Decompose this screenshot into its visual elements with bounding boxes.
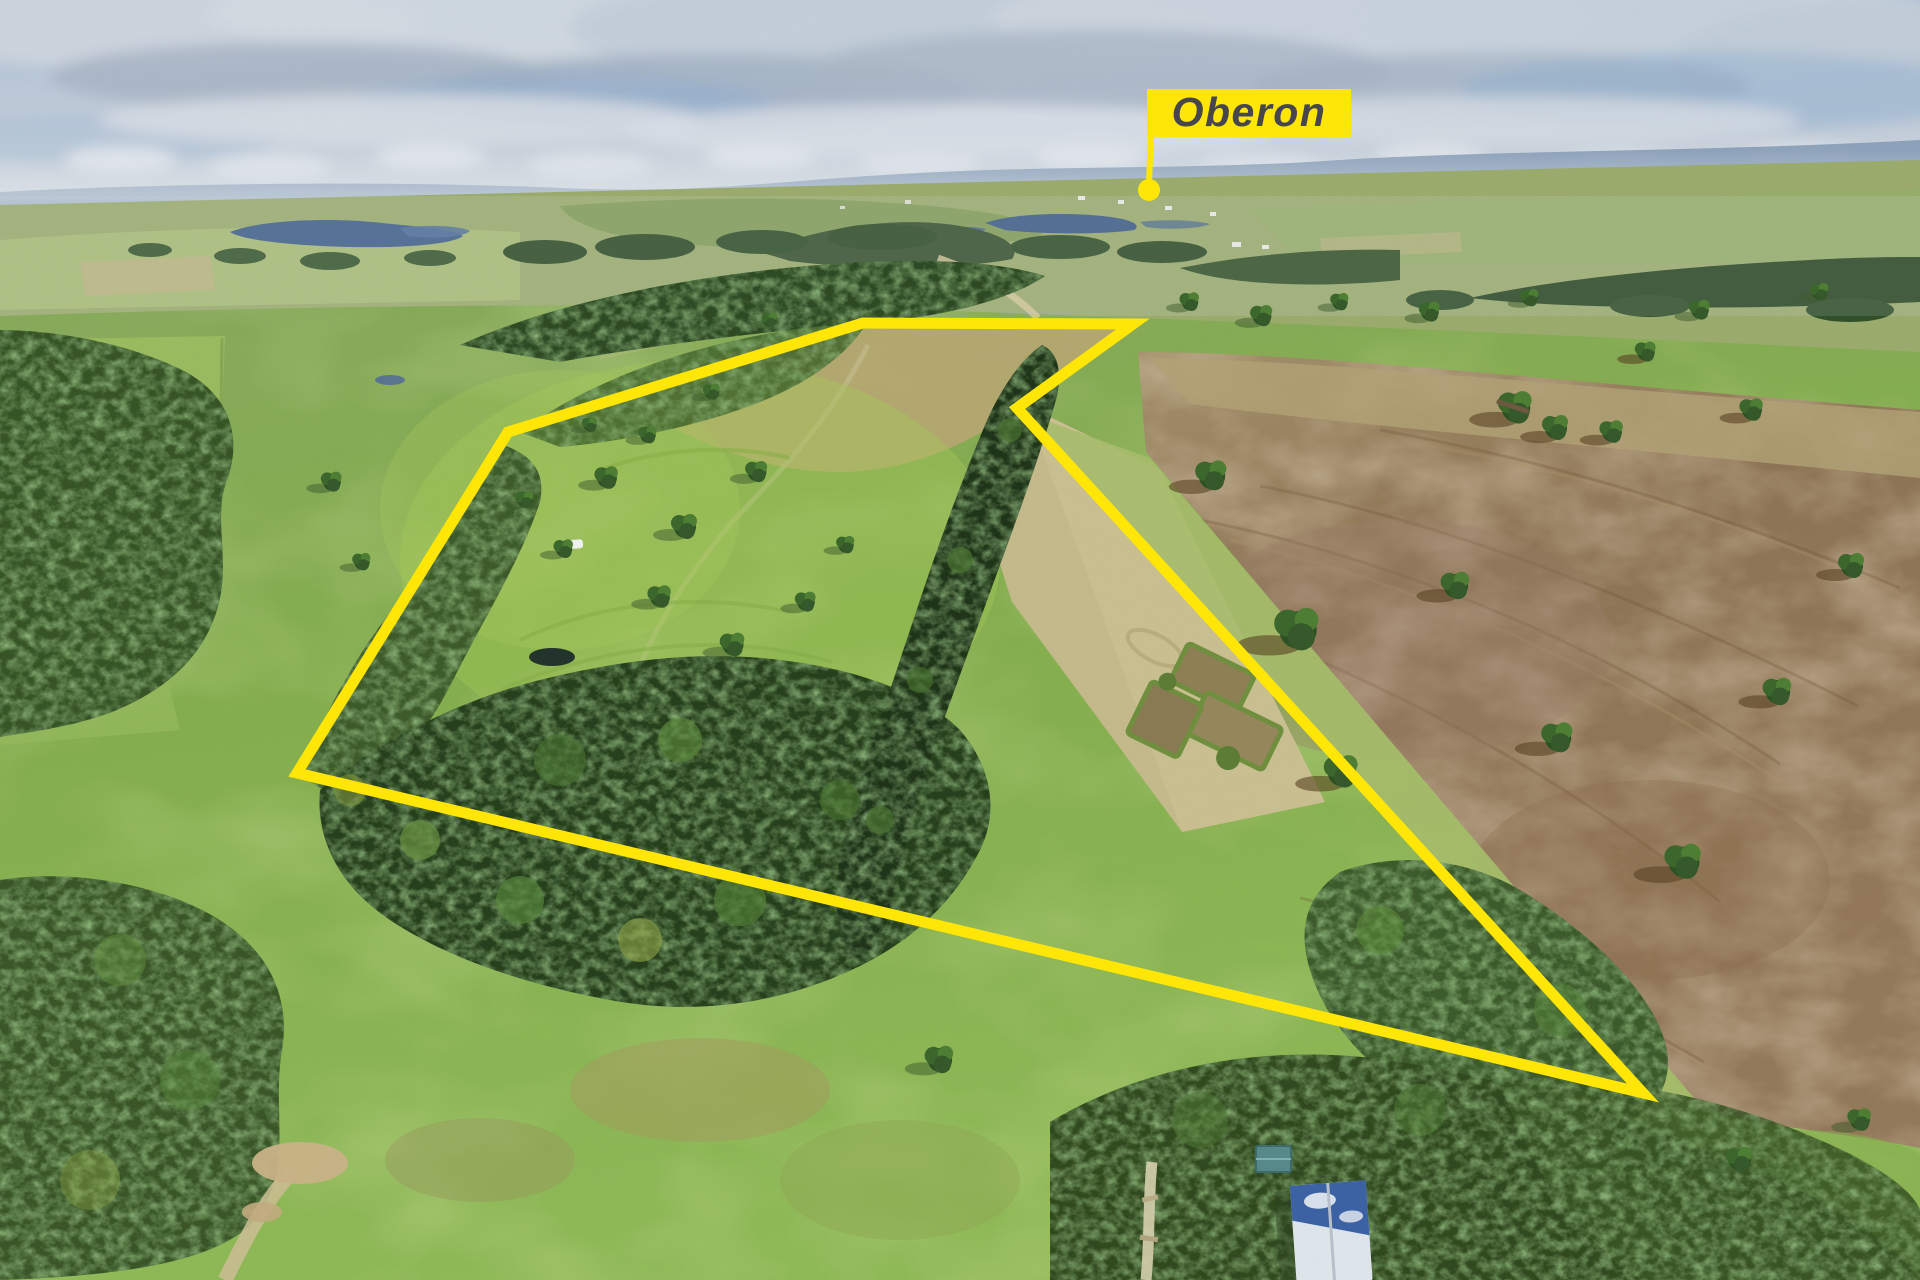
photo-canvas: Oberon [0, 0, 1920, 1280]
aerial-photo: Oberon [0, 0, 1920, 1280]
photo-grain [0, 0, 1920, 1280]
